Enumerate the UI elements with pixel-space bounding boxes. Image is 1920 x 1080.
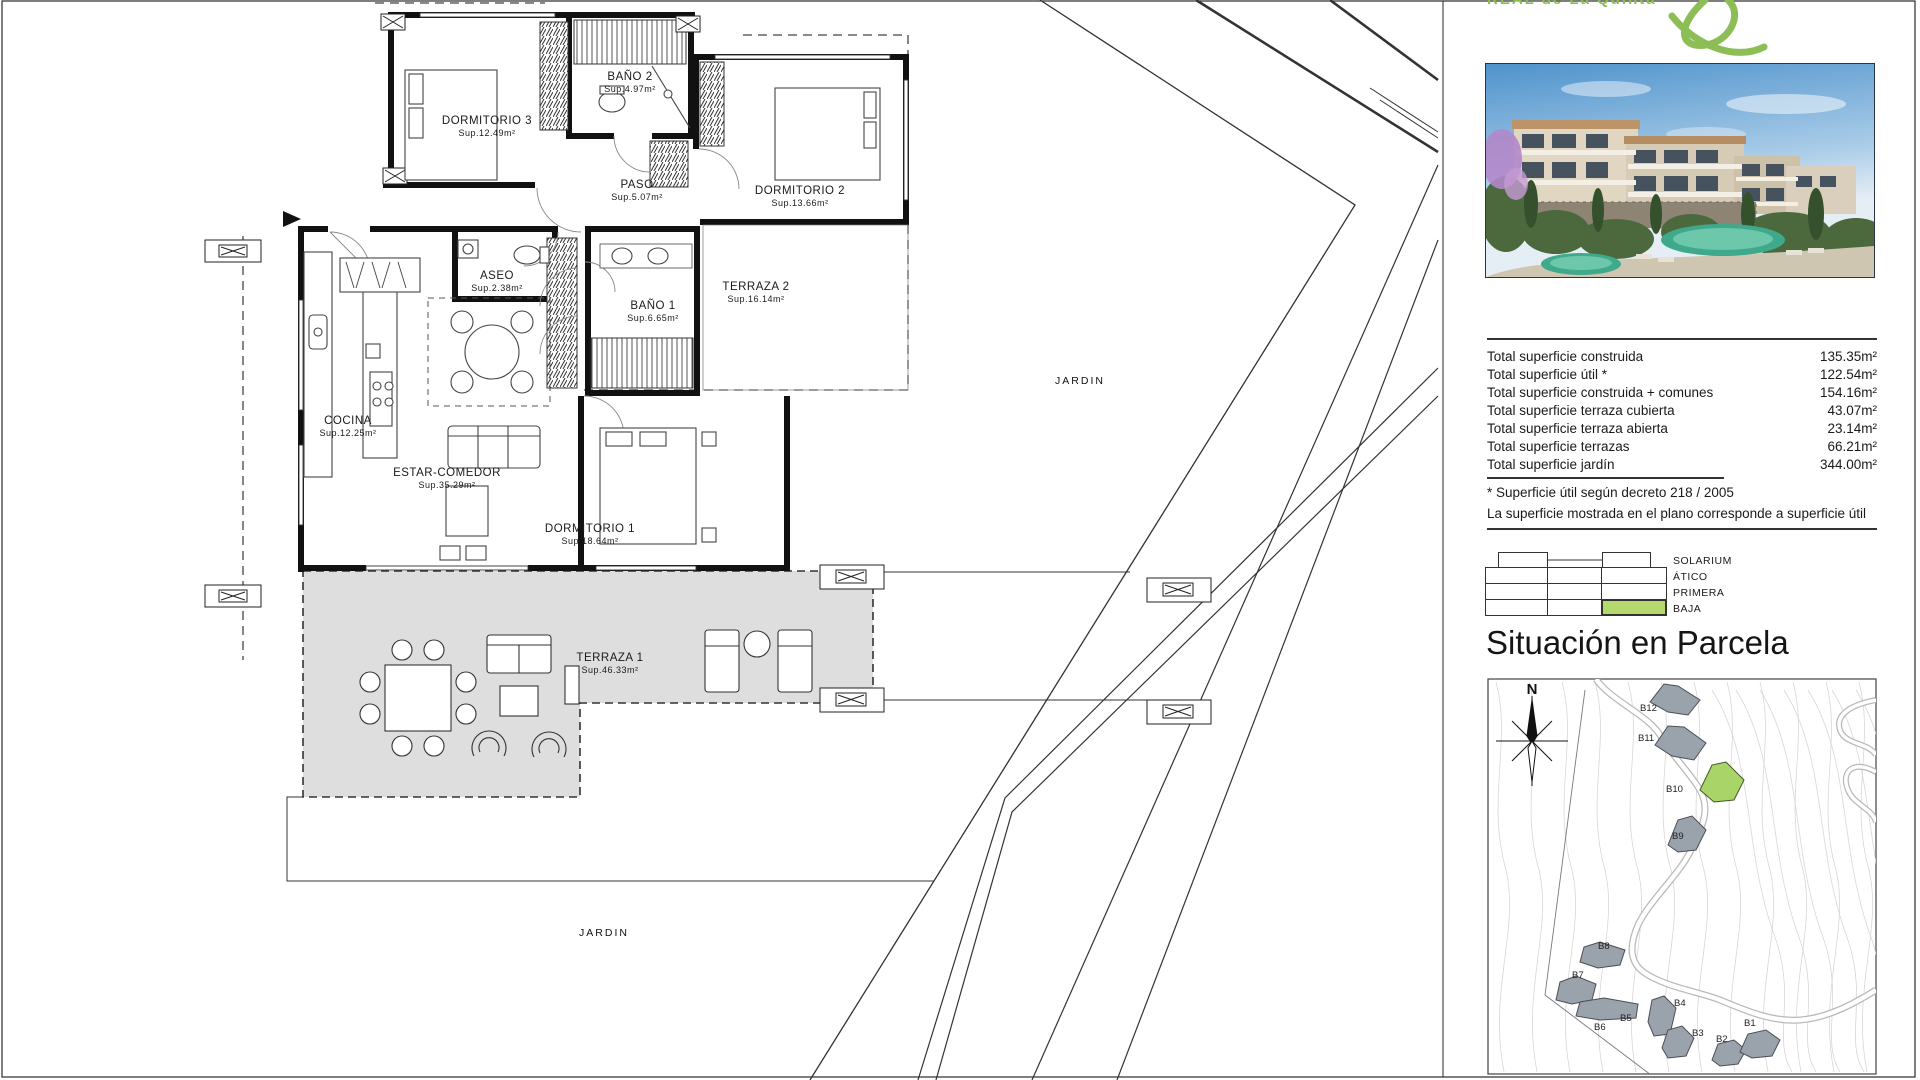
project-render-photo — [1485, 63, 1875, 278]
room-label: DORMITORIO 3 — [442, 115, 532, 127]
summary-label: Total superficie útil * — [1487, 366, 1607, 384]
svg-text:B3: B3 — [1692, 1028, 1704, 1039]
summary-label: Total superficie terrazas — [1487, 438, 1630, 456]
room-label: ESTAR-COMEDOR — [393, 467, 501, 479]
svg-text:Sup.13.66m²: Sup.13.66m² — [771, 198, 828, 208]
legend-box — [1602, 552, 1651, 568]
north-label: N — [1527, 681, 1538, 698]
svg-text:B4: B4 — [1674, 998, 1686, 1009]
svg-text:B7: B7 — [1572, 970, 1584, 981]
terraza2-outline — [703, 225, 908, 390]
svg-text:B8: B8 — [1598, 941, 1610, 952]
summary-value: 66.21m² — [1827, 438, 1877, 456]
room-label: COCINA — [324, 415, 372, 427]
svg-text:Sup.4.97m²: Sup.4.97m² — [604, 84, 656, 94]
legend-highlight-cell — [1602, 600, 1666, 615]
summary-value: 135.35m² — [1820, 348, 1877, 366]
legend-box — [1498, 552, 1548, 568]
svg-text:B6: B6 — [1594, 1022, 1606, 1033]
summary-label: Total superficie terraza abierta — [1487, 420, 1668, 438]
room-label: PASO — [620, 179, 653, 191]
room-label: TERRAZA 2 — [722, 281, 789, 293]
summary-label: Total superficie terraza cubierta — [1487, 402, 1675, 420]
svg-text:Sup.12.49m²: Sup.12.49m² — [458, 128, 515, 138]
level-legend: SOLARIUM ÁTICO PRIMERA BAJA — [1485, 552, 1725, 616]
legend-row-atico — [1485, 567, 1667, 584]
room-label: BAÑO 2 — [607, 70, 652, 83]
svg-text:Sup.46.33m²: Sup.46.33m² — [581, 665, 638, 675]
legend-row-primera — [1485, 583, 1667, 600]
summary-row: Total superficie construida + comunes 15… — [1487, 384, 1877, 402]
site-plan-title: Situación en Parcela — [1486, 624, 1789, 662]
room-label: DORMITORIO 1 — [545, 523, 635, 535]
svg-text:B10: B10 — [1666, 784, 1683, 795]
summary-value: 43.07m² — [1827, 402, 1877, 420]
svg-text:Sup.35.29m²: Sup.35.29m² — [418, 480, 475, 490]
garden-label: JARDIN — [579, 927, 629, 939]
surface-summary: Total superficie construida 135.35m² Tot… — [1487, 338, 1877, 530]
svg-text:B11: B11 — [1638, 733, 1654, 744]
svg-text:Sup.6.65m²: Sup.6.65m² — [627, 313, 679, 323]
summary-value: 23.14m² — [1827, 420, 1877, 438]
legend-divider — [1547, 567, 1548, 616]
svg-text:B1: B1 — [1744, 1018, 1756, 1029]
legend-label: ÁTICO — [1673, 569, 1708, 585]
svg-text:Sup.12.25m²: Sup.12.25m² — [319, 428, 376, 438]
plan-sheet: { "logo": { "brand": "REAL de La Quinta"… — [0, 0, 1920, 1080]
room-label: BAÑO 1 — [630, 299, 675, 312]
room-label: TERRAZA 1 — [576, 652, 643, 664]
summary-row: Total superficie terraza cubierta 43.07m… — [1487, 402, 1877, 420]
garden-boundary — [287, 797, 934, 881]
svg-text:Sup.16.14m²: Sup.16.14m² — [727, 294, 784, 304]
summary-row: Total superficie construida 135.35m² — [1487, 348, 1877, 366]
summary-label: Total superficie construida — [1487, 348, 1643, 366]
svg-text:Sup.18.64m²: Sup.18.64m² — [561, 536, 618, 546]
svg-text:B5: B5 — [1620, 1013, 1632, 1024]
svg-text:Sup.5.07m²: Sup.5.07m² — [611, 192, 663, 202]
summary-value: 344.00m² — [1820, 456, 1877, 474]
legend-label: PRIMERA — [1673, 585, 1724, 601]
svg-text:B9: B9 — [1672, 831, 1684, 842]
room-label: ASEO — [480, 270, 514, 282]
svg-text:B2: B2 — [1716, 1034, 1728, 1045]
svg-text:Sup.2.38m²: Sup.2.38m² — [471, 283, 523, 293]
footnote-plan: La superficie mostrada en el plano corre… — [1487, 506, 1877, 521]
footnote-decree: * Superficie útil según decreto 218 / 20… — [1487, 485, 1877, 500]
brand-q-swoosh-icon — [1610, 0, 1780, 62]
room-label: DORMITORIO 2 — [755, 185, 845, 197]
summary-label: Total superficie construida + comunes — [1487, 384, 1713, 402]
garden-label: JARDIN — [1055, 375, 1105, 387]
legend-label: BAJA — [1673, 601, 1701, 617]
rule-top — [1487, 338, 1877, 340]
svg-text:B12: B12 — [1640, 703, 1657, 714]
summary-row: Total superficie terraza abierta 23.14m² — [1487, 420, 1877, 438]
legend-label: SOLARIUM — [1673, 553, 1732, 569]
rule-bottom — [1487, 528, 1877, 530]
summary-value: 122.54m² — [1820, 366, 1877, 384]
summary-row: Total superficie útil * 122.54m² — [1487, 366, 1877, 384]
summary-row: Total superficie jardín 344.00m² — [1487, 456, 1877, 474]
entrance-arrow-icon — [283, 211, 301, 227]
summary-label: Total superficie jardín — [1487, 456, 1615, 474]
summary-value: 154.16m² — [1820, 384, 1877, 402]
rule-short — [1487, 477, 1724, 479]
summary-row: Total superficie terrazas 66.21m² — [1487, 438, 1877, 456]
